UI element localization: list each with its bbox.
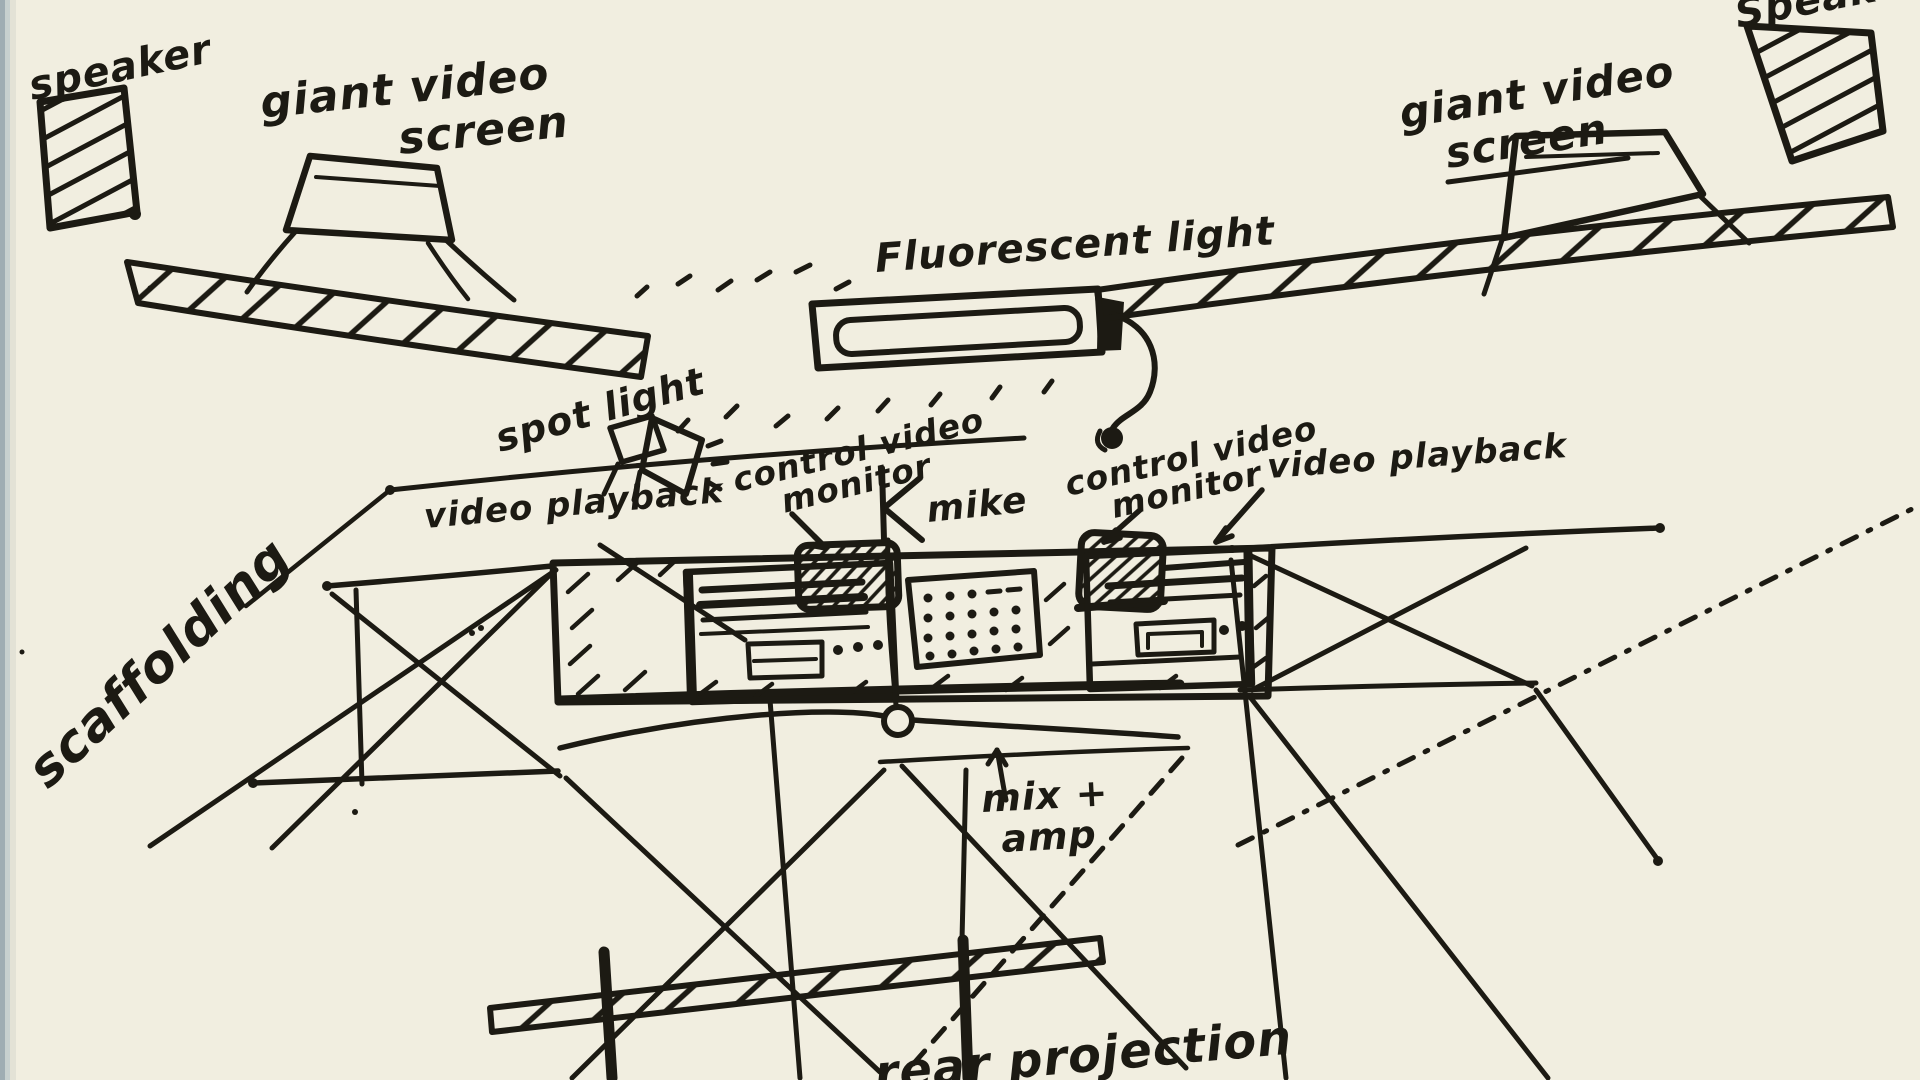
mike-label: mike xyxy=(925,480,1030,531)
light-rays-bottom xyxy=(678,381,1052,431)
speaker-right-icon xyxy=(1747,26,1883,161)
control-table xyxy=(553,532,1272,702)
control-monitor-left-arrow xyxy=(792,514,826,548)
rear-projection-label: rear projection xyxy=(872,1010,1294,1080)
stage-plan-sketch: speaker giant video screen xyxy=(0,0,1920,1080)
scaffolding-label: scaffolding xyxy=(16,527,303,800)
sketch-sheet: speaker giant video screen xyxy=(0,0,1920,1080)
giant-screen-right-label: giant video screen xyxy=(1396,46,1678,182)
mixer-knobs xyxy=(924,590,1023,661)
speaker-left-icon xyxy=(40,88,141,228)
mix-amp-label: mix + amp xyxy=(980,770,1109,861)
screen-post-left xyxy=(604,952,612,1078)
mixer-icon xyxy=(908,571,1040,667)
svg-text:amp: amp xyxy=(1000,812,1098,861)
control-monitor-left-icon xyxy=(797,542,899,609)
giant-video-screen-left-icon xyxy=(127,156,648,377)
light-rays-top xyxy=(637,265,849,296)
